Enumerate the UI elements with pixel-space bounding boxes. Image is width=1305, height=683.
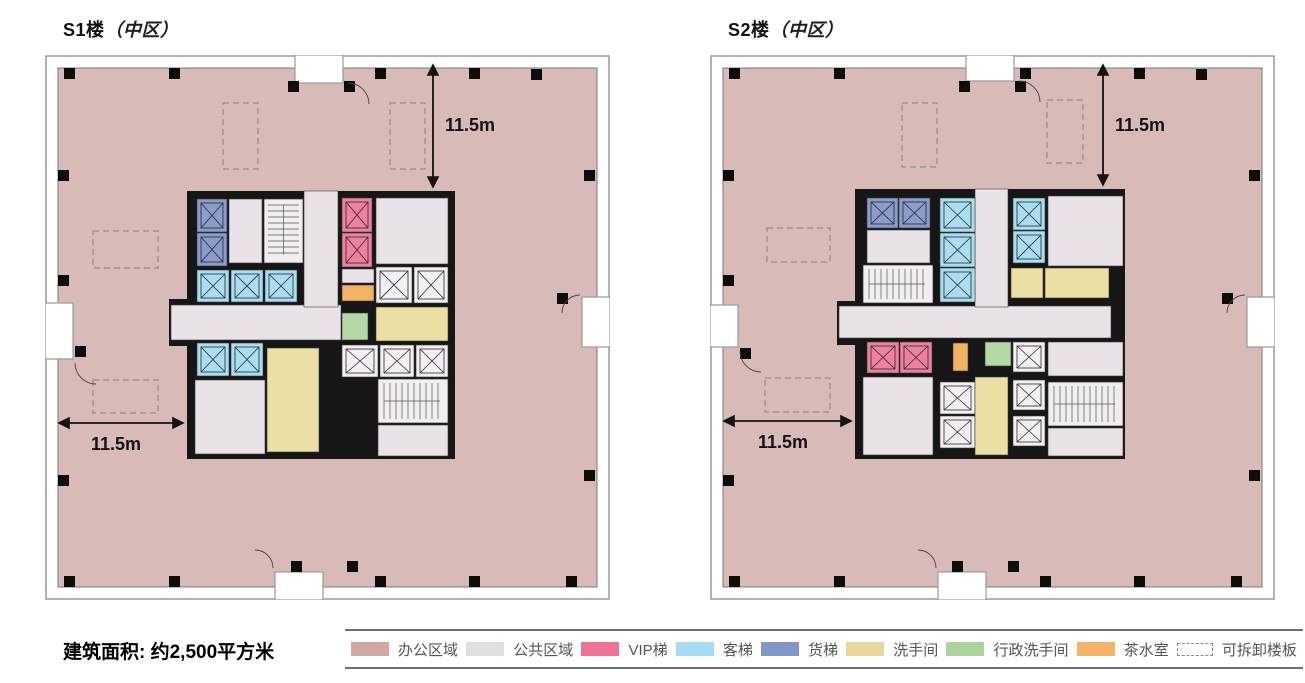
legend-label-vip-elevator: VIP梯 bbox=[628, 639, 667, 660]
s1-dim-label-vertical: 11.5m bbox=[445, 115, 495, 135]
s2-restroom-east-small bbox=[1011, 268, 1043, 298]
legend-label-passenger-elevator: 客梯 bbox=[723, 639, 753, 660]
s1-service-shafts-east bbox=[376, 267, 448, 303]
s2-stair-west bbox=[863, 265, 933, 303]
s2-restroom-east bbox=[1045, 268, 1109, 298]
legend-label-tea-room: 茶水室 bbox=[1124, 639, 1169, 660]
legend-item-tea-room: 茶水室 bbox=[1077, 639, 1169, 660]
legend-swatch-executive-restroom bbox=[946, 642, 984, 656]
legend-item-passenger-elevator: 客梯 bbox=[676, 639, 753, 660]
legend-swatch-vip-elevator bbox=[581, 642, 619, 656]
plan-title-s1: S1楼（中区） bbox=[63, 16, 179, 42]
legend-item-restroom: 洗手间 bbox=[846, 639, 938, 660]
s1-shafts-mid bbox=[342, 345, 448, 377]
plan-title-s1-main: S1楼 bbox=[63, 20, 105, 40]
s2-restroom-south bbox=[975, 377, 1008, 455]
s1-stair-south bbox=[378, 379, 448, 423]
s2-corridor bbox=[839, 306, 1111, 338]
legend-label-executive-restroom: 行政洗手间 bbox=[993, 639, 1068, 660]
plan-title-s2: S2楼（中区） bbox=[728, 16, 844, 42]
legend-item-vip-elevator: VIP梯 bbox=[581, 639, 667, 660]
legend: 办公区域 公共区域 VIP梯 客梯 货梯 洗手间 行政洗手间 茶水室 可拆卸楼板 bbox=[345, 629, 1303, 669]
s1-dim-label-horizontal: 11.5m bbox=[91, 434, 141, 454]
legend-swatch-passenger-elevator bbox=[676, 642, 714, 656]
plan-title-s2-main: S2楼 bbox=[728, 20, 770, 40]
legend-label-public-area: 公共区域 bbox=[513, 639, 573, 660]
legend-swatch-freight-elevator bbox=[761, 642, 799, 656]
legend-label-office-area: 办公区域 bbox=[398, 639, 458, 660]
legend-item-executive-restroom: 行政洗手间 bbox=[946, 639, 1068, 660]
plan-title-s1-sub: （中区） bbox=[105, 20, 179, 40]
s1-executive-restroom bbox=[342, 313, 368, 340]
s2-dim-label-horizontal: 11.5m bbox=[758, 432, 808, 452]
legend-swatch-public-area bbox=[466, 642, 504, 656]
s2-tea-room bbox=[953, 343, 968, 371]
legend-label-removable-slab: 可拆卸楼板 bbox=[1222, 639, 1297, 660]
legend-item-office-area: 办公区域 bbox=[351, 639, 458, 660]
s2-floor-plan-drawing: 11.5m 11.5m bbox=[710, 55, 1275, 600]
legend-swatch-removable-slab bbox=[1177, 643, 1213, 656]
legend-item-freight-elevator: 货梯 bbox=[761, 639, 838, 660]
s1-floor-plan-drawing: 11.5m 11.5m bbox=[45, 55, 610, 600]
s2-executive-restroom bbox=[985, 342, 1011, 366]
legend-label-restroom: 洗手间 bbox=[893, 639, 938, 660]
s1-tea-room bbox=[342, 285, 374, 301]
s2-passenger-elevators-west bbox=[940, 198, 975, 302]
legend-label-freight-elevator: 货梯 bbox=[808, 639, 838, 660]
s1-corridor bbox=[171, 305, 341, 340]
s2-shafts-mid bbox=[1013, 342, 1045, 446]
s1-stair-north bbox=[264, 199, 303, 263]
s1-passenger-elevators-north bbox=[197, 270, 297, 302]
s1-restroom-south bbox=[267, 348, 319, 452]
floor-plan-s1: 11.5m 11.5m bbox=[45, 55, 610, 600]
legend-item-public-area: 公共区域 bbox=[466, 639, 573, 660]
plan-title-s2-sub: （中区） bbox=[770, 20, 844, 40]
s1-restroom-east bbox=[376, 307, 448, 341]
legend-swatch-office-area bbox=[351, 642, 389, 656]
legend-swatch-tea-room bbox=[1077, 642, 1115, 656]
s1-core bbox=[169, 191, 455, 459]
legend-swatch-restroom bbox=[846, 642, 884, 656]
s2-dim-label-vertical: 11.5m bbox=[1115, 115, 1165, 135]
building-area-label: 建筑面积: 约2,500平方米 bbox=[63, 637, 274, 664]
s2-core bbox=[837, 189, 1125, 459]
legend-item-removable-slab: 可拆卸楼板 bbox=[1177, 639, 1297, 660]
floor-plan-s2: 11.5m 11.5m bbox=[710, 55, 1275, 600]
s2-stair-south bbox=[1048, 382, 1123, 426]
